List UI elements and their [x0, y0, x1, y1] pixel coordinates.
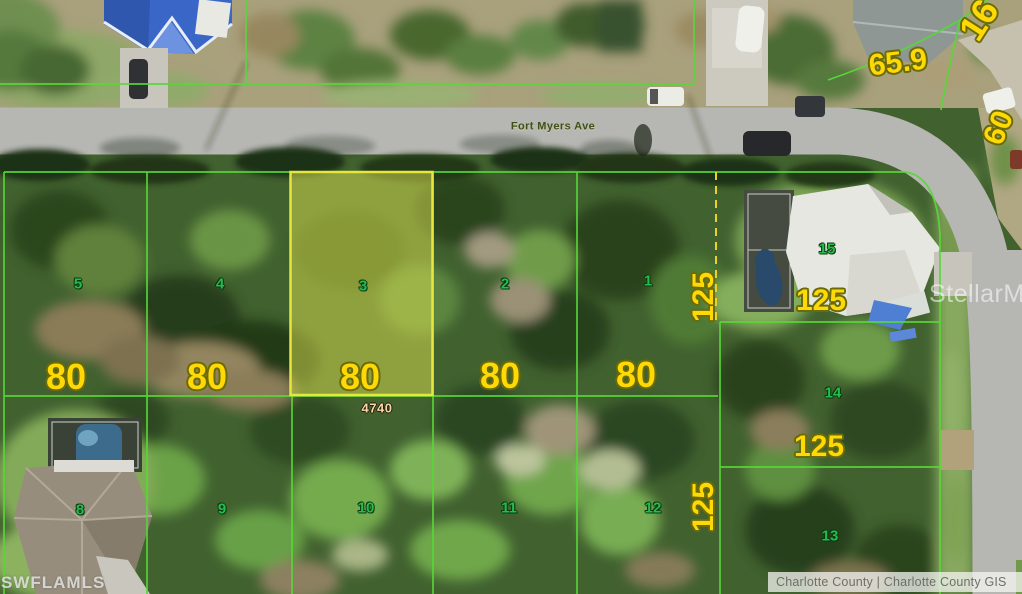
lot-number-label: 2 — [501, 277, 509, 292]
parcel-lines — [0, 0, 996, 594]
dimension-label: 80 — [340, 359, 380, 395]
dimension-label: 80 — [46, 359, 86, 395]
lot-number-label: 3 — [359, 279, 367, 294]
attribution-text: Charlotte County | Charlotte County GIS — [776, 575, 1007, 589]
lot-number-label: 13 — [822, 529, 839, 544]
lot-number-label: 15 — [819, 242, 836, 257]
dimension-label: 80 — [616, 357, 656, 393]
attribution-bar: Charlotte County | Charlotte County GIS — [768, 572, 1022, 592]
lot-number-label: 14 — [825, 386, 842, 401]
parcel-address-label: 4740 — [362, 402, 393, 415]
watermark-stellar-mls: StellarMLS — [929, 282, 1022, 307]
lot-number-label: 12 — [645, 501, 662, 516]
lot-number-label: 4 — [216, 277, 224, 292]
dimension-label: 125 — [689, 482, 719, 532]
watermark-swflamls: SWFLAMLS — [1, 574, 105, 591]
lot-number-label: 11 — [501, 501, 517, 516]
dimension-label: 125 — [689, 272, 719, 322]
lot-number-label: 1 — [644, 274, 652, 289]
street-name-label: Fort Myers Ave — [511, 122, 595, 133]
parcel-map-screenshot: 5432115141389101112808080808012512512512… — [0, 0, 1022, 594]
lot-number-label: 9 — [218, 502, 226, 517]
lot-number-label: 8 — [76, 503, 84, 518]
dimension-label: 80 — [480, 358, 520, 394]
dimension-label: 65.9 — [867, 45, 929, 82]
lot-number-label: 5 — [74, 277, 82, 292]
dimension-label: 80 — [187, 359, 227, 395]
dimension-label: 125 — [796, 286, 846, 316]
dimension-label: 125 — [794, 432, 844, 462]
lot-number-label: 10 — [358, 501, 375, 516]
